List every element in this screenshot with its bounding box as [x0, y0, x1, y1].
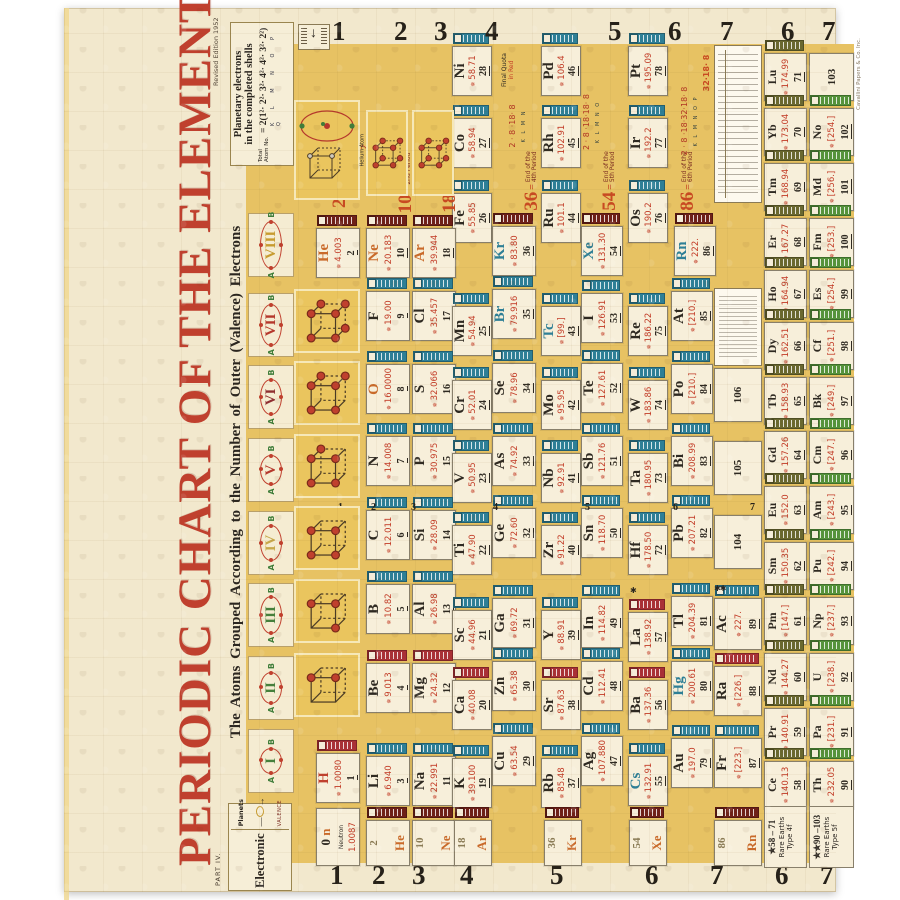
config-card: [672, 351, 710, 362]
element-cell-Fr: Fr✵ [223.]87: [714, 738, 762, 788]
shell-letters: K L M N O P Q: [270, 26, 282, 126]
element-cell-Mn: Mn✵ 54.9425: [452, 306, 492, 356]
end-of-period-block: 86=End of the6th Period: [670, 158, 706, 204]
helium-atom-diagram: Helium Atom: [294, 100, 360, 200]
config-card: [810, 309, 851, 320]
element-cell-Os: Os✵ 190.276: [628, 193, 668, 243]
valence-cube-diagram: [294, 434, 360, 498]
element-cell-Ac: Ac✵ 227.89: [714, 598, 762, 650]
element-cell-Ra: Ra✵ [226.]88: [714, 666, 762, 716]
group-badge-IV: AIVB: [248, 511, 294, 575]
element-cell-Ag: Ag✵ 107.88047: [581, 736, 623, 786]
config-card: [810, 748, 851, 759]
octet-cube-diagram: [412, 110, 454, 196]
element-cell-Sn: Sn✵ 118.7050: [581, 508, 623, 558]
config-card: [672, 278, 710, 289]
period-digit-top: 7: [720, 16, 734, 47]
period-digit-top: 2: [394, 16, 408, 47]
part-label: PART IV.: [214, 842, 224, 886]
element-cell-Ir: Ir✵ 192.277: [628, 118, 668, 168]
element-cell-104: 104: [714, 515, 762, 569]
config-card: [765, 695, 804, 706]
config-card: [765, 748, 804, 759]
element-cell-Cl: Cl✵ 35.45717: [412, 291, 456, 341]
config-card: [629, 105, 665, 116]
element-cell-Sm: Sm✵ 150.3562: [764, 542, 807, 590]
config-card: [453, 293, 489, 304]
element-cell-Pu: Pu✵ [242.]94: [809, 542, 854, 590]
config-card: [542, 745, 578, 756]
config-card: [629, 180, 665, 191]
config-card: [629, 512, 665, 523]
config-card: [493, 423, 533, 434]
helium-caption: Helium Atom: [359, 134, 365, 166]
shell-config-note: 2 · 8 ·18· 8K L M N: [502, 94, 520, 158]
period-digit-top: 7: [822, 16, 836, 47]
element-cell-Cf: Cf✵ [251.]98: [809, 322, 854, 370]
config-card: [413, 807, 453, 818]
config-card: [413, 278, 453, 289]
rare-earth-names-table: [714, 45, 762, 203]
element-cell-Se: Se✵ 78.9634: [492, 363, 536, 413]
element-cell-As: As✵ 74.9233: [492, 436, 536, 486]
element-cell-S: S✵ 32.06616: [412, 364, 456, 414]
element-cell-Pt: Pt✵ 195.0978: [628, 46, 668, 96]
element-cell-Br: Br✵ 79.91635: [492, 289, 536, 339]
shell-config-note: 2 · 8 ·18·32·18· 8K L M N O P: [674, 82, 692, 160]
config-card: [629, 743, 665, 754]
group-badge-I: AIB: [248, 729, 294, 793]
config-card: [413, 650, 453, 661]
staircase-digit: 4: [493, 502, 498, 513]
element-cell-Ne: Ne✵ 20.18310: [366, 228, 410, 278]
lanthanide-marker: ✱: [630, 586, 637, 595]
valence-orbit-icon: —→: [256, 797, 266, 826]
puzzle-photo: Ni✵ 58.7128Pd✵ 106.446Pt✵ 195.0978Co✵ 58…: [0, 0, 900, 900]
period-digit-bottom: 6: [645, 860, 659, 891]
config-card: [453, 667, 489, 678]
config-card: [582, 423, 620, 434]
actinide-marker: ✱✱: [714, 584, 725, 593]
footnote-rare-earths-5f: ✯✯90 –103 Rare Earths Type 5f: [809, 806, 854, 868]
element-cell-Si: Si✵ 28.0914: [412, 510, 456, 560]
element-cell-Al: Al✵ 26.9813: [412, 584, 456, 634]
element-cell-Cr: Cr✵ 52.0124: [452, 380, 492, 430]
element-cell-La: La✵ 138.9257: [628, 612, 668, 662]
period-digit-top: 4: [485, 16, 499, 47]
element-cell-H: H✵ 1.00801: [316, 753, 360, 803]
element-cell-Ca: Ca✵ 40.0820: [452, 680, 492, 730]
config-card: [582, 648, 620, 659]
config-card: [367, 278, 407, 289]
element-cell-Dy: Dy✵ 162.5166: [764, 322, 807, 370]
group-badge-V: AVB: [248, 438, 294, 502]
config-card: [413, 571, 453, 582]
period-digit-bottom: 3: [412, 860, 426, 891]
config-card: [582, 350, 620, 361]
shell-config-note: 2 · 8 ·18·18· 8K L M N O: [576, 84, 594, 160]
element-cell-At: At✵ [210.]85: [671, 291, 713, 341]
config-card: [493, 648, 533, 659]
element-cell-Lu: Lu✵ 174.9971: [764, 53, 807, 101]
element-cell-Cu: Cu✵ 63.5429: [492, 736, 536, 786]
element-cell-Pm: Pm✵ [147.]61: [764, 597, 807, 645]
config-card: [413, 497, 453, 508]
staircase-digit: 5: [585, 502, 590, 513]
electronic-legend-box: Electronic Planets —→ VALENCE: [228, 803, 292, 891]
element-cell-Np: Np✵ [237.]93: [809, 597, 854, 645]
neutron-cell: 0 nNeutron1.0087: [316, 808, 360, 866]
config-card: [317, 215, 357, 226]
footnote-rare-earths-4f: ✯58 – 71 Rare Earths Type 4f: [764, 806, 807, 868]
element-cell-Ta: Ta✵ 180.9573: [628, 453, 668, 503]
element-cell-Mo: Mo✵ 95.9542: [541, 380, 581, 430]
element-cell-Li: Li✵ 6.9403: [366, 756, 410, 806]
element-cell-W: W✵ 183.8674: [628, 380, 668, 430]
config-card: [765, 364, 804, 375]
element-cell-U: U✵ [238.]92: [809, 653, 854, 701]
config-card: [672, 725, 710, 736]
config-card: [715, 807, 759, 818]
config-card: [810, 584, 851, 595]
config-card: [367, 351, 407, 362]
config-card: [765, 205, 804, 216]
config-card: [672, 423, 710, 434]
period-digit-bottom: 2: [372, 860, 386, 891]
element-cell-Tc: Tc✵ [99.]43: [541, 306, 581, 356]
period-digit-bottom: 5: [550, 860, 564, 891]
period-digit-top: 1: [332, 16, 346, 47]
config-card: [765, 95, 804, 106]
valence-cube-diagram: [294, 506, 360, 570]
config-card: [810, 529, 851, 540]
element-cell-Tm: Tm✵ 168.9469: [764, 163, 807, 211]
config-card: [493, 723, 533, 734]
element-cell-Cm: Cm✵ [247.]96: [809, 431, 854, 479]
element-cell-105: 105: [714, 441, 762, 495]
config-card: [453, 745, 489, 756]
element-cell-Ge: Ge✵ 72.6032: [492, 508, 536, 558]
element-cell-Zn: Zn✵ 65.3830: [492, 661, 536, 711]
group-badge-II: AIIB: [248, 656, 294, 720]
element-cell-Ni: Ni✵ 58.7128: [452, 46, 492, 96]
config-card: [810, 695, 851, 706]
config-card: [672, 648, 710, 659]
element-cell-Am: Am✵ [243.]95: [809, 486, 854, 534]
config-card: [413, 215, 453, 226]
element-cell-No: No✵ [254.]102: [809, 108, 854, 156]
planetary-electrons-box: Planetary electronsin the completed shel…: [230, 22, 294, 166]
element-cell-Ga: Ga✵ 69.7231: [492, 598, 536, 648]
period-digit-top: 3: [434, 16, 448, 47]
periodic-chart-poster: Ni✵ 58.7128Pd✵ 106.446Pt✵ 195.0978Co✵ 58…: [64, 8, 836, 892]
element-cell-Mg: Mg✵ 24.3212: [412, 663, 456, 713]
config-card: [453, 597, 489, 608]
element-cell-Kr: Kr✵ 83.8036: [492, 226, 536, 276]
config-card: [542, 33, 578, 44]
config-card: [493, 495, 533, 506]
period-digit-bottom: 7: [710, 860, 724, 891]
element-cell-106: 106: [714, 368, 762, 422]
period-digit-top: 6: [781, 16, 795, 47]
element-cell-Rb: Rb✵ 85.4837: [541, 758, 581, 808]
staircase-digit: 3: [411, 502, 416, 513]
config-card: [367, 743, 407, 754]
config-card: [765, 309, 804, 320]
octet-cube-diagram: [366, 110, 408, 196]
element-cell-Sc: Sc✵ 44.9621: [452, 610, 492, 660]
config-card: [810, 640, 851, 651]
valence-cube-diagram: [294, 361, 360, 425]
config-card: [582, 280, 620, 291]
config-card: [765, 150, 804, 161]
staircase-digit: 7: [750, 502, 755, 513]
config-card: [413, 351, 453, 362]
config-card: [765, 640, 804, 651]
valence-cube-diagram: [294, 653, 360, 717]
element-cell-Bi: Bi✵ 208.9983: [671, 436, 713, 486]
config-card: [455, 807, 489, 818]
revised-edition: Revised Edition 1952: [212, 24, 224, 86]
element-cell-103: 103: [809, 53, 854, 101]
config-card: [765, 257, 804, 268]
config-card: [493, 213, 533, 224]
config-card: [629, 33, 665, 44]
config-card: [629, 667, 665, 678]
config-card: [367, 423, 407, 434]
planets-label: Planets: [237, 797, 245, 826]
config-card: [542, 105, 578, 116]
config-card: [542, 293, 578, 304]
group-badge-VIII: AVIIIB: [248, 213, 294, 277]
element-cell-I: I✵ 126.9153: [581, 293, 623, 343]
config-card: [765, 418, 804, 429]
config-card: [542, 440, 578, 451]
element-cell-P: P✵ 30.97515: [412, 436, 456, 486]
element-cell-Ti: Ti✵ 47.9022: [452, 525, 492, 575]
config-card: [810, 205, 851, 216]
staircase-digit: 6: [673, 502, 678, 513]
element-cell-Au: Au✵ 197.079: [671, 738, 713, 788]
element-cell-Pb: Pb✵ 207.2182: [671, 508, 713, 558]
config-card: [453, 33, 489, 44]
config-card: [493, 585, 533, 596]
end-of-period-block: 36=End of the4th Period: [514, 158, 550, 204]
element-cell-Rn: Rn✵ 222.86: [674, 226, 716, 276]
element-cell-Pd: Pd✵ 106.446: [541, 46, 581, 96]
end-of-period-block: 54=End of the5th Period: [592, 158, 628, 204]
shell-config-note: 32·18· 8N O P: [696, 50, 714, 96]
config-card: [582, 213, 620, 224]
element-cell-K: K✵ 39.10019: [452, 758, 492, 808]
total-atom-no-label: Total Atom No.: [258, 136, 270, 162]
element-cell-Nb: Nb✵ 92.9141: [541, 453, 581, 503]
config-card: [413, 423, 453, 434]
config-card: [629, 293, 665, 304]
element-cell-Te: Te✵ 127.6152: [581, 363, 623, 413]
element-cell-Cs: Cs✵ 132.9155: [628, 756, 668, 806]
config-card: [810, 364, 851, 375]
config-card: [629, 440, 665, 451]
config-card: [453, 105, 489, 116]
config-card: [493, 276, 533, 287]
config-card: [810, 473, 851, 484]
config-card: [715, 653, 759, 664]
poster-subtitle: The Atoms Grouped According to the Numbe…: [227, 166, 245, 798]
config-card: [629, 599, 665, 610]
valence-label: VALENCE: [277, 797, 283, 826]
config-card: [715, 725, 759, 736]
element-cell-Be: Be✵ 9.0134: [366, 663, 410, 713]
config-card: [810, 95, 851, 106]
element-cell-Xe: Xe✵ 131.3054: [581, 226, 623, 276]
config-card: [542, 367, 578, 378]
down-arrow-icon: ↓: [310, 26, 317, 42]
element-cell-Yb: Yb✵ 173.0470: [764, 108, 807, 156]
group-badge-III: AIIIB: [248, 583, 294, 647]
config-card: [810, 418, 851, 429]
note-block: [714, 288, 762, 366]
config-card: [765, 529, 804, 540]
period-digit-top: 5: [608, 16, 622, 47]
planetary-header: Planetary electronsin the completed shel…: [233, 26, 255, 162]
poster-title: PERIODIC CHART OF THE ELEMENTS: [158, 66, 232, 866]
config-card: [453, 440, 489, 451]
element-cell-Ce: Ce✵ 140.1358: [764, 761, 807, 809]
element-cell-Gd: Gd✵ 157.2664: [764, 431, 807, 479]
element-cell-Th: Th✵ 232.0590: [809, 761, 854, 809]
period-digit-bottom: 1: [330, 860, 344, 891]
period-digit-bottom: 4: [460, 860, 474, 891]
config-card: [630, 807, 664, 818]
publisher-credit: Cavallini Papers & Co. Inc.: [856, 36, 865, 110]
element-cell-He: He✵ 4.0032: [316, 228, 360, 278]
config-card: [367, 215, 407, 226]
config-card: [582, 723, 620, 734]
element-cell-Zr: Zr✵ 91.2240: [541, 525, 581, 575]
element-cell-C: C✵ 12.0116: [366, 510, 410, 560]
config-card: [629, 367, 665, 378]
element-cell-V: V✵ 50.9523: [452, 453, 492, 503]
config-card: [810, 257, 851, 268]
element-cell-B: B✵ 10.825: [366, 584, 410, 634]
element-cell-Na: Na✵ 22.99111: [412, 756, 456, 806]
element-cell-Nd: Nd✵ 144.2760: [764, 653, 807, 701]
group-badge-VII: AVIIB: [248, 293, 294, 357]
element-cell-Sb: Sb✵ 121.7651: [581, 436, 623, 486]
config-card: [493, 350, 533, 361]
element-cell-In: In✵ 114.8249: [581, 598, 623, 648]
element-cell-Hf: Hf✵ 178.5072: [628, 525, 668, 575]
config-card: [672, 583, 710, 594]
column-gap-strip: [64, 8, 69, 823]
config-card: [765, 584, 804, 595]
period-digit-top: 6: [668, 16, 682, 47]
config-card: [542, 512, 578, 523]
element-cell-Hg: Hg✵ 200.6180: [671, 661, 713, 711]
config-card: [545, 807, 579, 818]
config-card: [453, 367, 489, 378]
element-cell-F: F✵ 19.009: [366, 291, 410, 341]
config-card: [542, 597, 578, 608]
config-card: [582, 585, 620, 596]
element-cell-Eu: Eu✵ 152.063: [764, 486, 807, 534]
element-cell-O: O✵ 16.00008: [366, 364, 410, 414]
config-card: [367, 571, 407, 582]
element-cell-Ba: Ba✵ 137.3656: [628, 680, 668, 730]
staircase-digit: 2: [371, 502, 376, 513]
element-cell-Md: Md✵ [256.]101: [809, 163, 854, 211]
config-card: [413, 743, 453, 754]
element-cell-Re: Re✵ 186.2275: [628, 306, 668, 356]
valence-cube-diagram: [294, 289, 360, 353]
config-card: [453, 512, 489, 523]
valence-cube-diagram: [294, 579, 360, 643]
electronic-word: Electronic: [231, 829, 289, 888]
column-gap-strip: [64, 823, 69, 900]
arrow-legend-box: ↓: [298, 24, 330, 50]
element-cell-Y: Y✵ 88.9139: [541, 610, 581, 660]
group-badge-VI: AVIB: [248, 365, 294, 429]
config-card: [317, 740, 357, 751]
final-quota-note: Final Quota in Red: [502, 44, 528, 96]
element-cell-Cd: Cd✵ 112.4148: [581, 661, 623, 711]
element-cell-Tl: Tl✵ 204.3981: [671, 596, 713, 646]
element-cell-Po: Po✵ [210.]84: [671, 364, 713, 414]
config-card: [675, 213, 713, 224]
config-card: [542, 667, 578, 678]
shell-formula: = 2(1²· 2²· 3²· 4²· 4²· 3²· 2²): [259, 28, 269, 133]
config-card: [765, 473, 804, 484]
config-card: [367, 807, 407, 818]
element-cell-Sr: Sr✵ 87.6338: [541, 680, 581, 730]
config-card: [810, 150, 851, 161]
element-cell-Ar: Ar✵ 39.94418: [412, 228, 456, 278]
config-card: [367, 650, 407, 661]
element-cell-N: N✵ 14.0087: [366, 436, 410, 486]
